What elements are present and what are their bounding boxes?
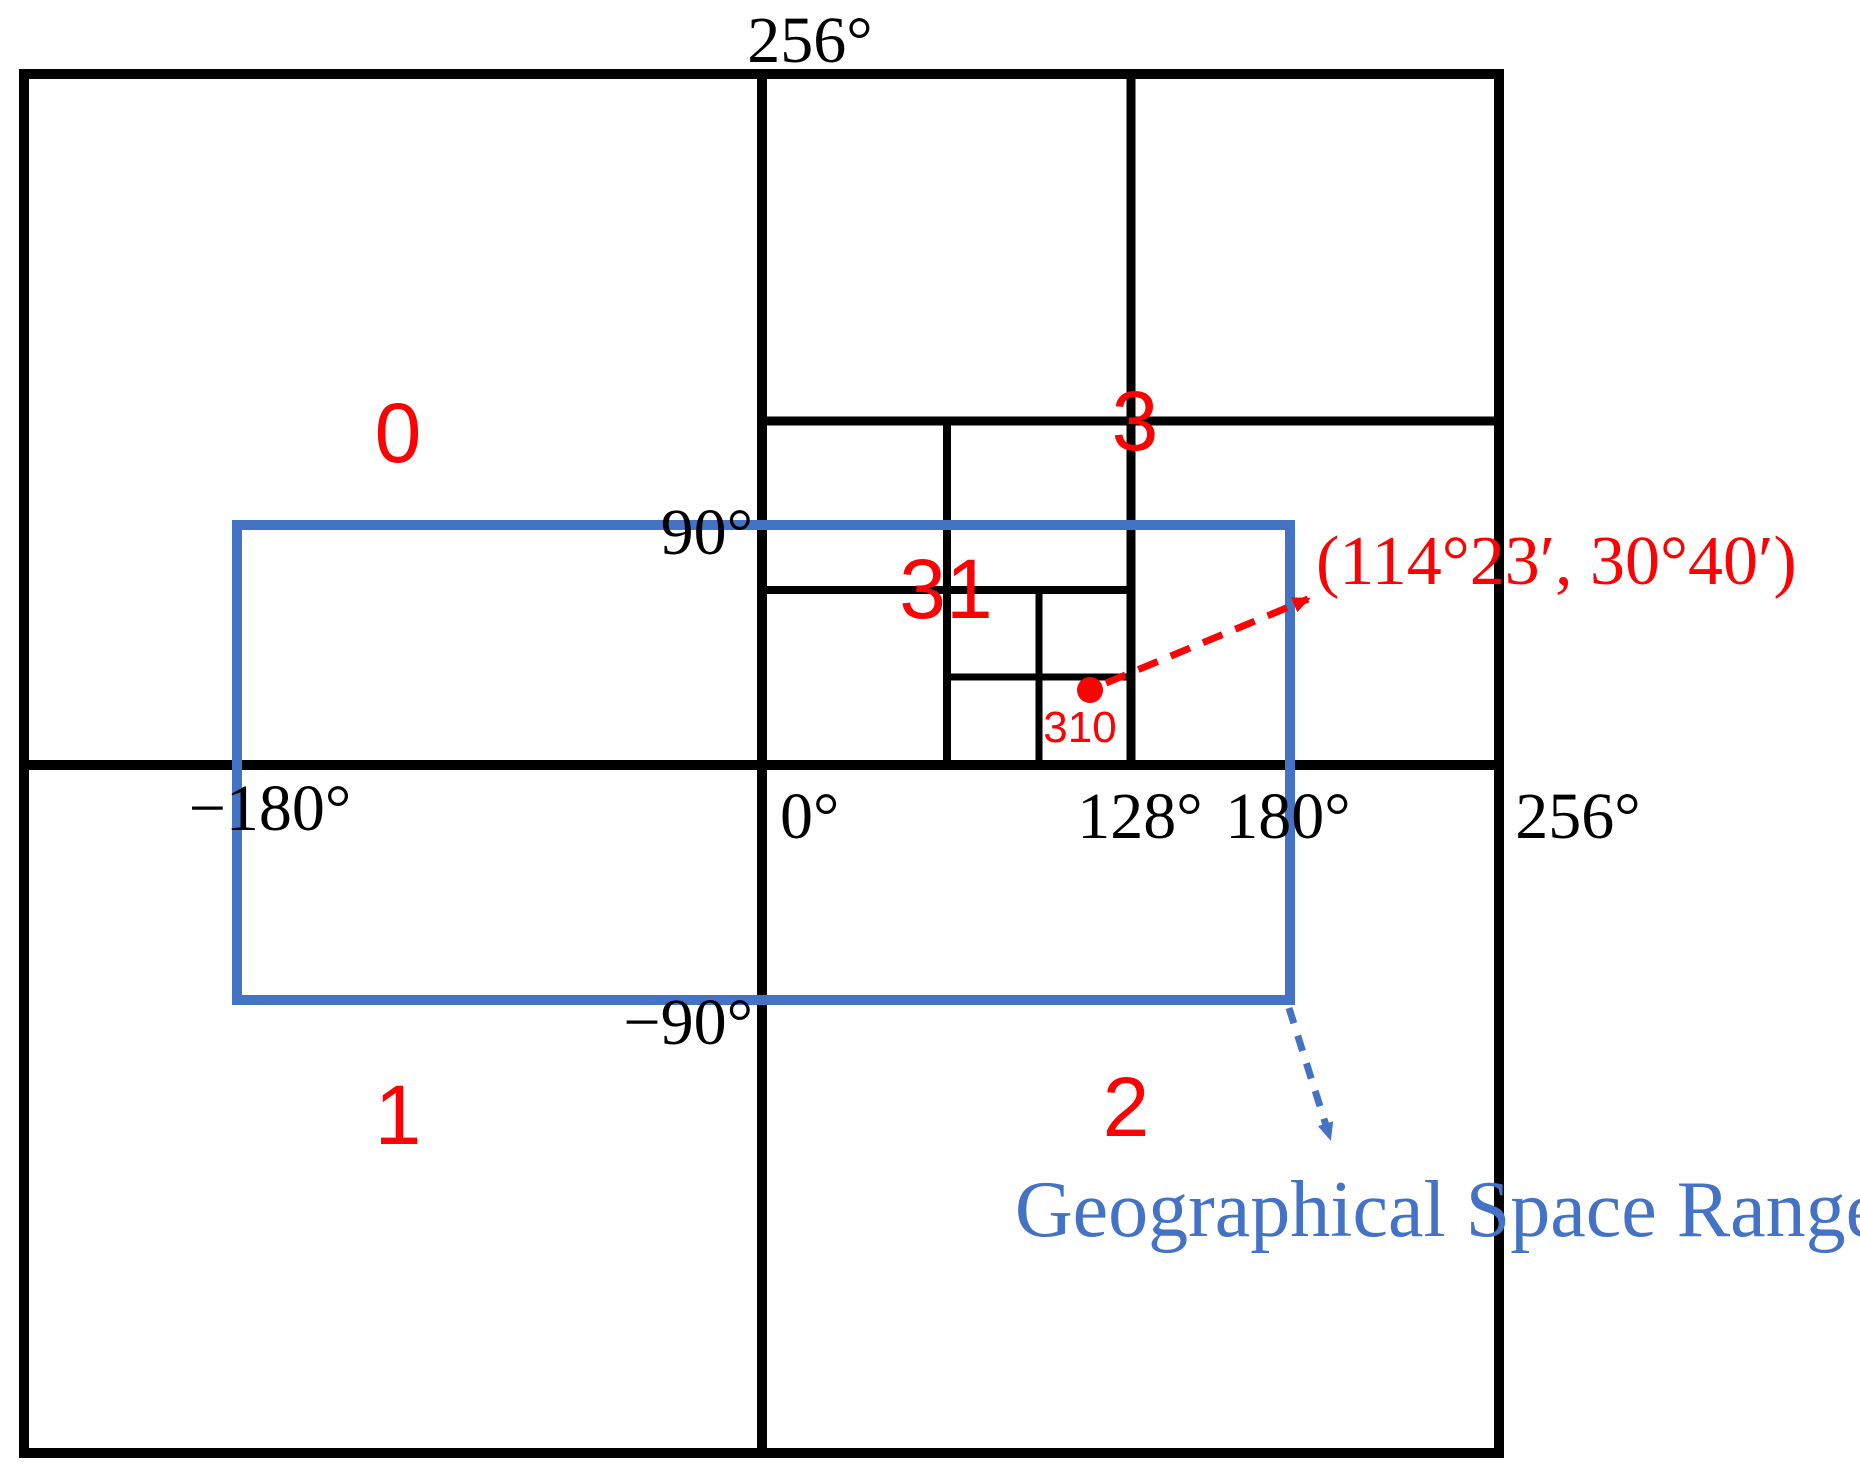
- quadtree-encoding-figure: 256° 90° −180° 0° 128° 180° 256° −90° 0 …: [0, 0, 1860, 1480]
- axis-label-neg90: −90°: [623, 986, 753, 1059]
- point-coordinates-label: (114°23′, 30°40′): [1316, 523, 1797, 600]
- diagram-canvas: 256° 90° −180° 0° 128° 180° 256° −90° 0 …: [0, 0, 1860, 1480]
- geo-range-label: Geographical Space Range: [1015, 1166, 1860, 1254]
- axis-label-256-right: 256°: [1515, 780, 1640, 853]
- point-dot: [1077, 677, 1103, 703]
- quadrant-label-3: 3: [1112, 374, 1159, 468]
- quadrant-label-0: 0: [375, 386, 422, 480]
- cell-label-31: 31: [899, 542, 992, 636]
- range-callout-arrow: [1289, 1008, 1330, 1138]
- axis-label-256-top: 256°: [747, 4, 872, 77]
- axis-label-0: 0°: [780, 780, 839, 853]
- cell-label-310: 310: [1043, 703, 1116, 752]
- axis-label-180: 180°: [1225, 780, 1350, 853]
- axis-label-neg180: −180°: [189, 772, 352, 845]
- quadrant-label-1: 1: [375, 1068, 422, 1162]
- axis-label-128: 128°: [1077, 780, 1202, 853]
- point-callout-arrow: [1106, 599, 1308, 683]
- axis-label-90: 90°: [661, 496, 753, 569]
- quadrant-label-2: 2: [1103, 1060, 1150, 1154]
